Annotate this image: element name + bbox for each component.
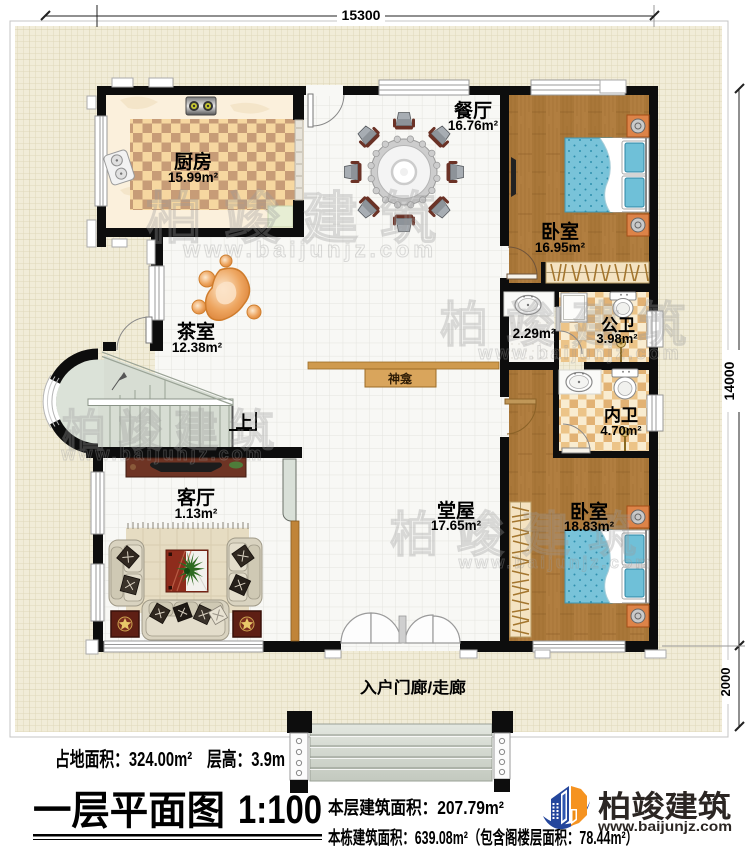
svg-text:2.29m²: 2.29m²	[513, 326, 556, 341]
svg-text:2000: 2000	[718, 668, 733, 697]
svg-text:18.83m²: 18.83m²	[564, 519, 615, 534]
svg-text:16.76m²: 16.76m²	[448, 118, 499, 133]
svg-text:15300: 15300	[342, 7, 381, 23]
svg-text:上: 上	[236, 413, 253, 432]
svg-text:15.99m²: 15.99m²	[168, 170, 219, 185]
svg-text:www.baijunjz.com: www.baijunjz.com	[60, 444, 264, 464]
svg-text:本层建筑面积：207.79m²: 本层建筑面积：207.79m²	[328, 797, 504, 818]
svg-text:16.95m²: 16.95m²	[535, 240, 586, 255]
svg-text:1:100: 1:100	[238, 788, 322, 832]
svg-text:占地面积：324.00m² 层高：3.9m: 占地面积：324.00m² 层高：3.9m	[55, 747, 285, 771]
svg-text:1.13m²: 1.13m²	[175, 506, 218, 521]
svg-text:17.65m²: 17.65m²	[431, 518, 482, 533]
svg-text:4.70m²: 4.70m²	[600, 423, 642, 438]
svg-text:内卫: 内卫	[604, 405, 638, 425]
svg-text:3.98m²: 3.98m²	[596, 331, 638, 346]
svg-text:神龛: 神龛	[388, 371, 413, 386]
svg-text:本栋建筑面积：639.08m²（包含阁楼层面积：78.44m: 本栋建筑面积：639.08m²（包含阁楼层面积：78.44m²）	[328, 827, 638, 848]
svg-text:www.baijunjz.com: www.baijunjz.com	[458, 553, 654, 572]
svg-text:www.baijunjz.com: www.baijunjz.com	[477, 343, 681, 363]
svg-text:14000: 14000	[721, 361, 737, 400]
svg-text:一层平面图: 一层平面图	[33, 789, 225, 833]
svg-text:12.38m²: 12.38m²	[172, 340, 223, 355]
svg-text:www.baijunjz.com: www.baijunjz.com	[182, 237, 437, 262]
svg-text:www.baijunjz.com: www.baijunjz.com	[597, 818, 732, 834]
svg-text:入户门廊/走廊: 入户门廊/走廊	[360, 678, 466, 697]
